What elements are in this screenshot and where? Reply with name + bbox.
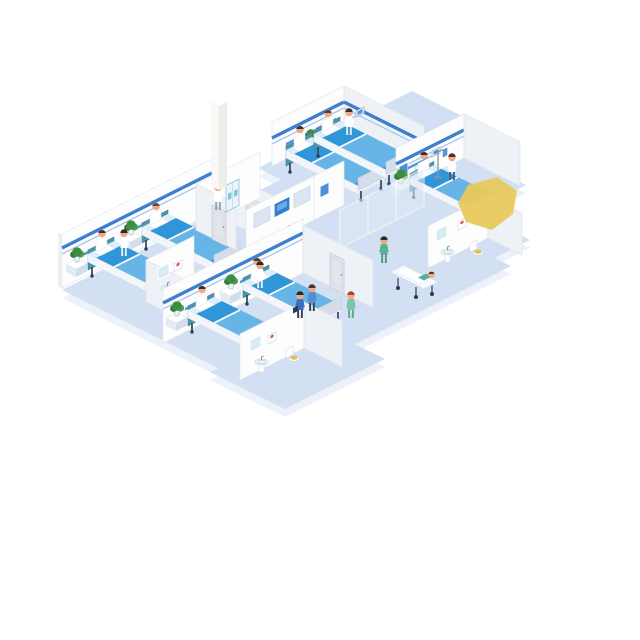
isometric-scene: 护士站 [0,0,640,640]
corridor-door [330,253,344,294]
supply-door [212,205,226,246]
tall-column [212,98,227,190]
wall-end-post [58,232,62,288]
hospital-floor-illustration: 护士站 [0,0,640,640]
